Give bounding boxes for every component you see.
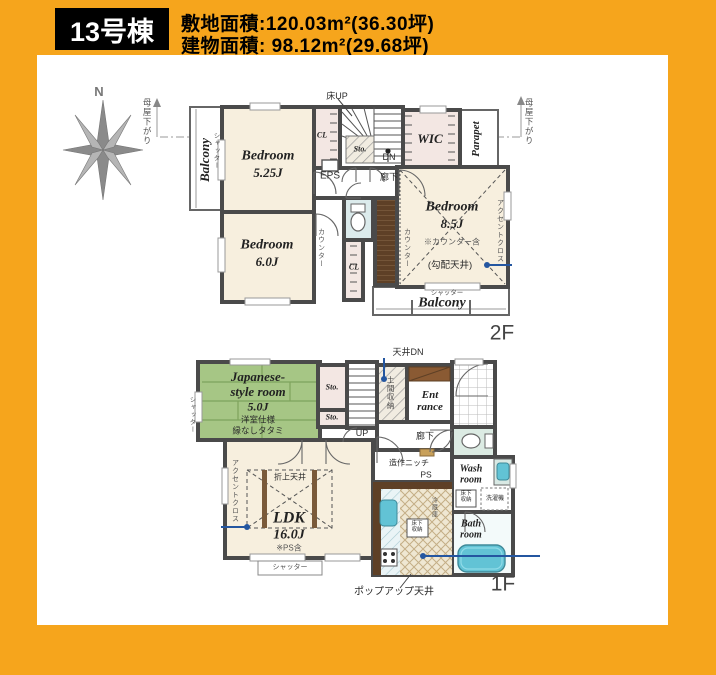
eaves-note-right: 母屋下がり (524, 98, 533, 146)
sto-a-label: Sto. (326, 384, 339, 393)
compass-rose (63, 100, 143, 200)
balcony-bottom-label: Balcony (418, 295, 465, 310)
floor-up-label: 床UP (326, 92, 348, 102)
washer-label: 洗濯機 (486, 496, 504, 502)
up-label: UP (356, 429, 369, 439)
bedroom-b-size: 6.0J (256, 255, 279, 269)
ceiling-dn-label: 天井DN (393, 348, 424, 358)
wic-label: WIC (417, 132, 442, 146)
jroom-note1: 洋室仕様 (241, 415, 275, 424)
floorplan-graphics (0, 0, 716, 675)
counter-left-label: カウンター (317, 228, 325, 268)
accent-cloth-2f-label: アクセントクロス (496, 199, 504, 263)
hallway-2f-label: 廊下 (380, 173, 398, 183)
niche-label: 造作ニッチ (389, 460, 429, 469)
counter-right-label: カウンター (403, 228, 411, 268)
eps-label: EPS (320, 172, 340, 183)
fridge-label: 冷蔵庫 (430, 497, 436, 518)
floor1-label: 1F (491, 574, 516, 597)
floorplan-flyer: 13号棟 敷地面積:120.03m²(36.30坪) 建物面積: 98.12m²… (0, 0, 716, 675)
bedroom-c-size: 8.5J (441, 217, 464, 231)
ps-label: PS (420, 470, 431, 479)
doma-storage-label: 土間収納 (386, 376, 394, 410)
floor-storage-wash-label: 床下収納 (459, 492, 473, 504)
sto-b-label: Sto. (326, 414, 339, 423)
eaves-note-left: 母屋下がり (142, 98, 151, 146)
shutter-left-label-1f: シャッター (188, 396, 195, 434)
ldk-ps-note: ※PS含 (276, 545, 301, 554)
bath-line2: room (460, 531, 482, 542)
jroom-note2: 縁なしタタミ (232, 426, 283, 435)
entrance-line2: rance (417, 402, 443, 414)
floor-storage-kitchen-label: 床下収納 (410, 522, 424, 534)
bedroom-b-name: Bedroom (241, 237, 294, 252)
accent-cloth-1f-label: アクセントクロス (231, 459, 239, 523)
compass-north-label: N (94, 85, 103, 99)
ldk-name: LDK (273, 509, 305, 526)
bedroom-c-counter-note: ※カウンター含 (424, 239, 480, 248)
popup-ceiling-label: ポップアップ天井 (354, 588, 434, 599)
shutter-bottom-label-1f: シャッター (273, 564, 308, 572)
dn-label: DN (383, 153, 396, 163)
cl-bottom-label: CL (349, 264, 359, 273)
sloped-ceiling-note: (勾配天井) (428, 261, 472, 271)
ldk-size: 16.0J (273, 527, 305, 542)
oriage-ceiling-label: 折上天井 (274, 474, 306, 483)
jroom-name-line2: style room (230, 385, 285, 399)
floor2-label: 2F (490, 323, 515, 346)
sto-2f-label: Sto. (354, 146, 367, 155)
bedroom-c-name: Bedroom (426, 199, 479, 214)
bedroom-a-size: 5.25J (253, 166, 282, 180)
jroom-name-line1: Japanese- (231, 370, 285, 384)
wash-line2: room (460, 476, 482, 487)
shutter-left-label-2f: シャッター (212, 132, 219, 170)
hallway-1f-label: 廊下 (416, 432, 434, 442)
jroom-size: 5.0J (248, 401, 269, 414)
balcony-left-label: Balcony (198, 138, 212, 182)
bedroom-a-name: Bedroom (242, 148, 295, 163)
parapet-label: Parapet (471, 121, 483, 156)
cl-top-label: CL (317, 132, 327, 141)
